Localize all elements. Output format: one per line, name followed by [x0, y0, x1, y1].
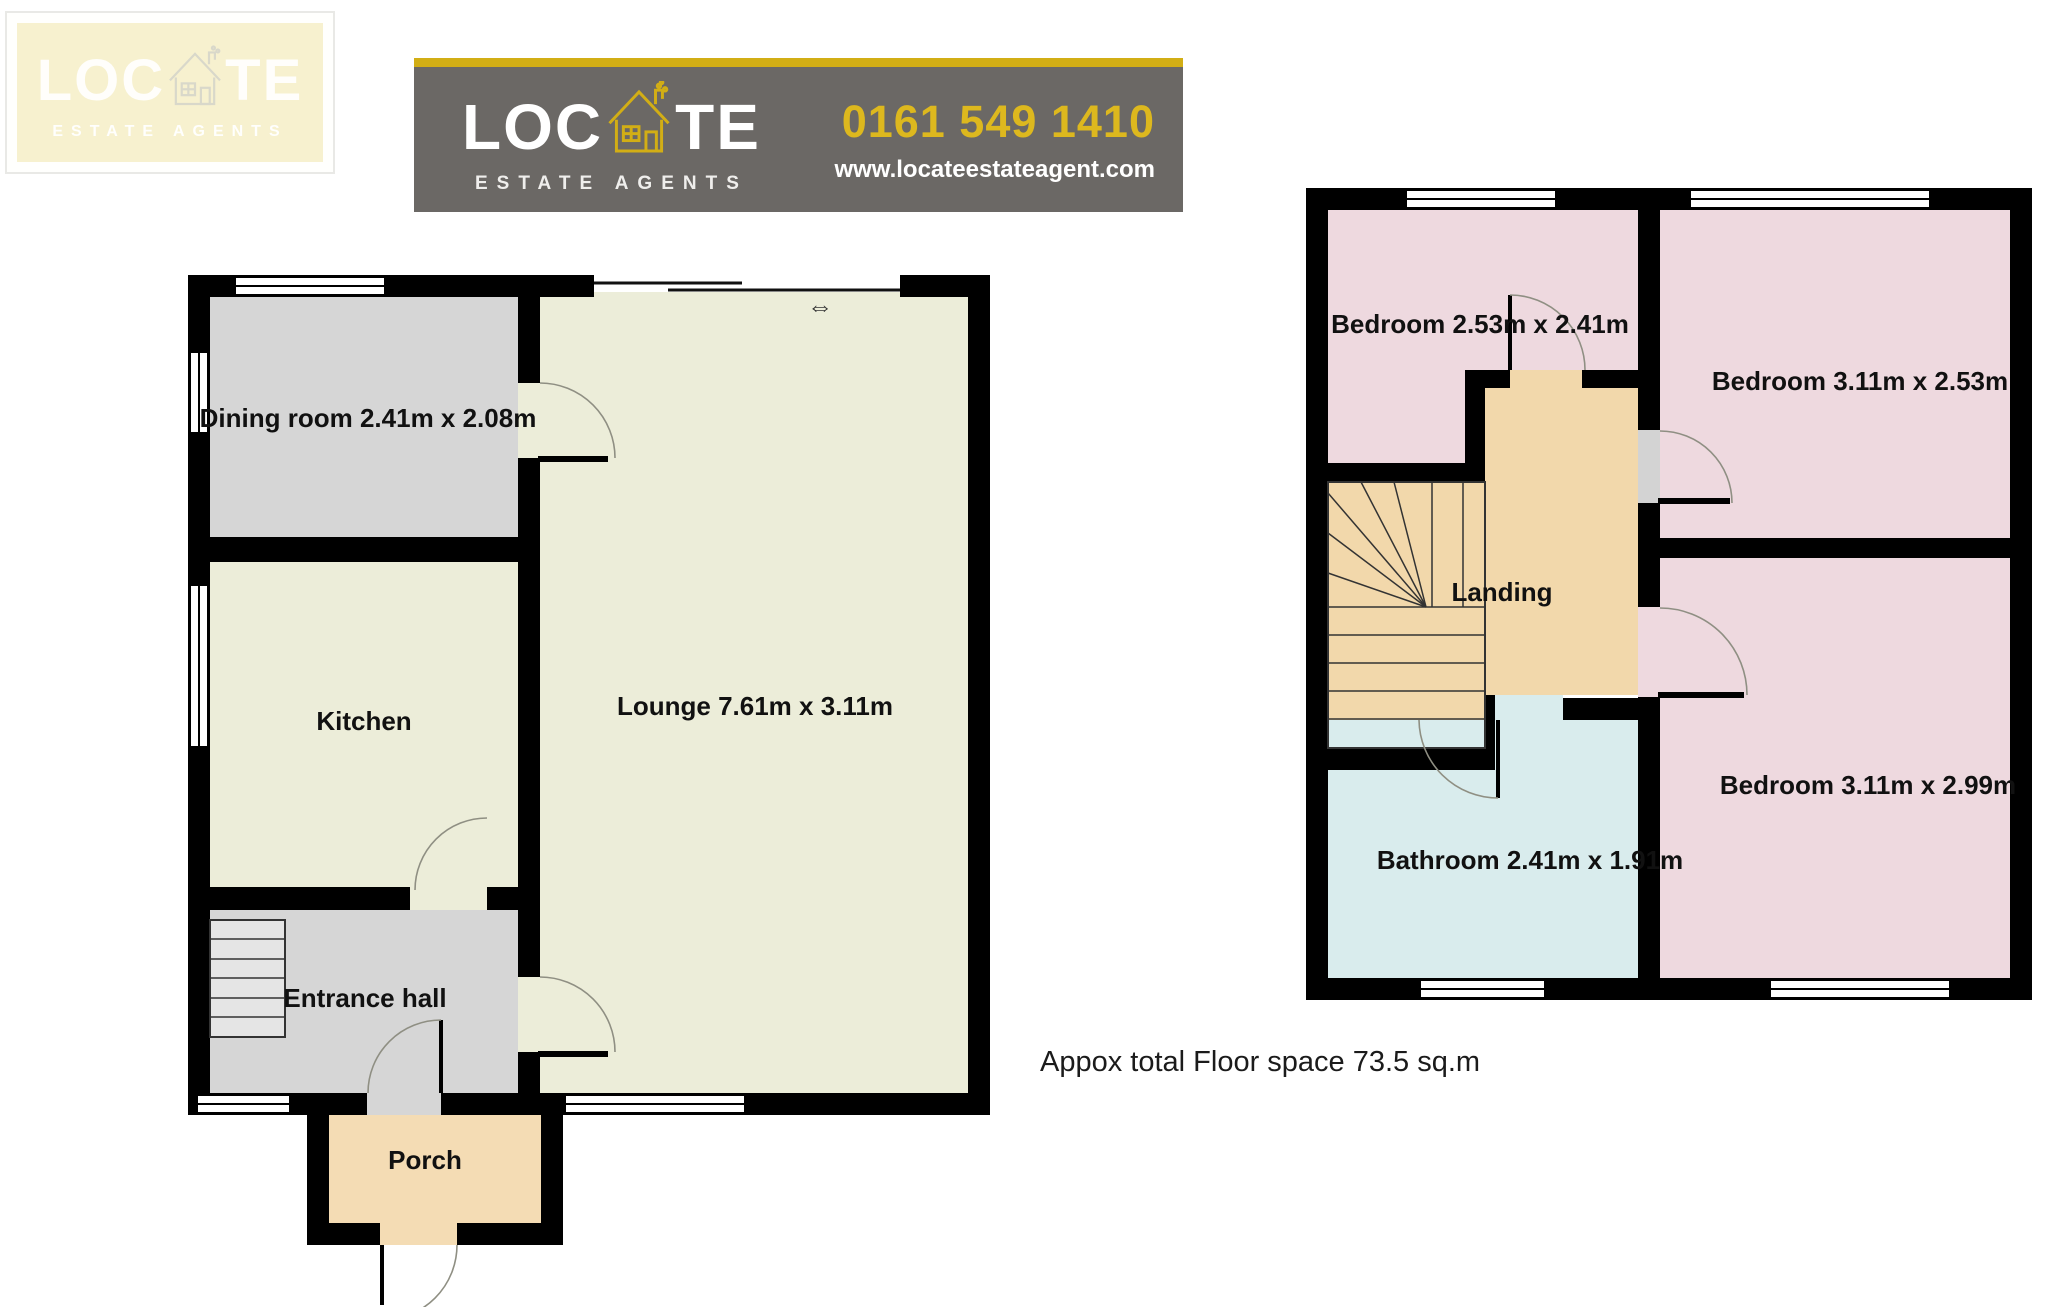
- room-label-landing: Landing: [1451, 577, 1552, 607]
- banner-phone: 0161 549 1410: [842, 96, 1155, 148]
- banner-inner: LOC TE E: [414, 67, 1183, 212]
- ground-floor-staircase: [210, 920, 285, 1037]
- window: [235, 277, 385, 295]
- sliding-door-arrow-icon: ⇔: [807, 291, 833, 321]
- window: [1770, 980, 1950, 998]
- watermark-logo: LOC TE ESTATE AGENTS: [7, 13, 333, 172]
- room-label-entrance-hall: Entrance hall: [283, 983, 446, 1013]
- room-label-bedroom1: Bedroom 2.53m x 2.41m: [1331, 309, 1629, 339]
- watermark-tagline: ESTATE AGENTS: [52, 123, 287, 141]
- watermark-word-left: LOC: [37, 52, 165, 110]
- banner-accent-bar: [414, 58, 1183, 67]
- banner-website: www.locateestateagent.com: [834, 156, 1155, 184]
- banner-word-right: TE: [675, 95, 761, 159]
- banner-word-left: LOC: [462, 95, 603, 159]
- room-label-dining: Dining room 2.41m x 2.08m: [200, 403, 537, 433]
- watermark-wordmark: LOC TE: [37, 45, 304, 117]
- bedroom3-area: [1660, 558, 2010, 978]
- window: [197, 1095, 290, 1113]
- room-label-lounge: Lounge 7.61m x 3.11m: [617, 691, 893, 721]
- banner-contact: 0161 549 1410 www.locateestateagent.com: [834, 96, 1155, 184]
- room-label-kitchen: Kitchen: [316, 706, 411, 736]
- banner-tagline: ESTATE AGENTS: [475, 173, 748, 195]
- house-icon: [167, 45, 223, 117]
- window: [1690, 190, 1930, 208]
- stairs-area: [1328, 482, 1485, 748]
- room-label-bathroom: Bathroom 2.41m x 1.91m: [1377, 845, 1683, 875]
- agency-banner: LOC TE E: [414, 58, 1183, 212]
- window: [190, 585, 208, 747]
- total-floor-space-note: Appox total Floor space 73.5 sq.m: [1040, 1046, 1480, 1079]
- front-door: [382, 1245, 457, 1307]
- house-icon: [606, 81, 672, 165]
- room-label-bedroom2: Bedroom 3.11m x 2.53m: [1712, 366, 2008, 396]
- window: [1420, 980, 1545, 998]
- watermark-word-right: TE: [225, 52, 303, 110]
- window: [565, 1095, 745, 1113]
- banner-wordmark: LOC TE: [462, 85, 761, 169]
- ground-floor-plan: ⇔ Dining room 2.41m x 2: [188, 275, 990, 1307]
- window: [1406, 190, 1556, 208]
- room-label-porch: Porch: [388, 1145, 462, 1175]
- first-floor-plan: Bedroom 2.53m x 2.41m Bedroom 3.11m x 2.…: [1306, 188, 2032, 1000]
- room-label-bedroom3: Bedroom 3.11m x 2.99m: [1720, 770, 2016, 800]
- door-panel: [1638, 430, 1660, 503]
- landing-area: [1485, 388, 1638, 695]
- banner-logo: LOC TE E: [462, 85, 761, 195]
